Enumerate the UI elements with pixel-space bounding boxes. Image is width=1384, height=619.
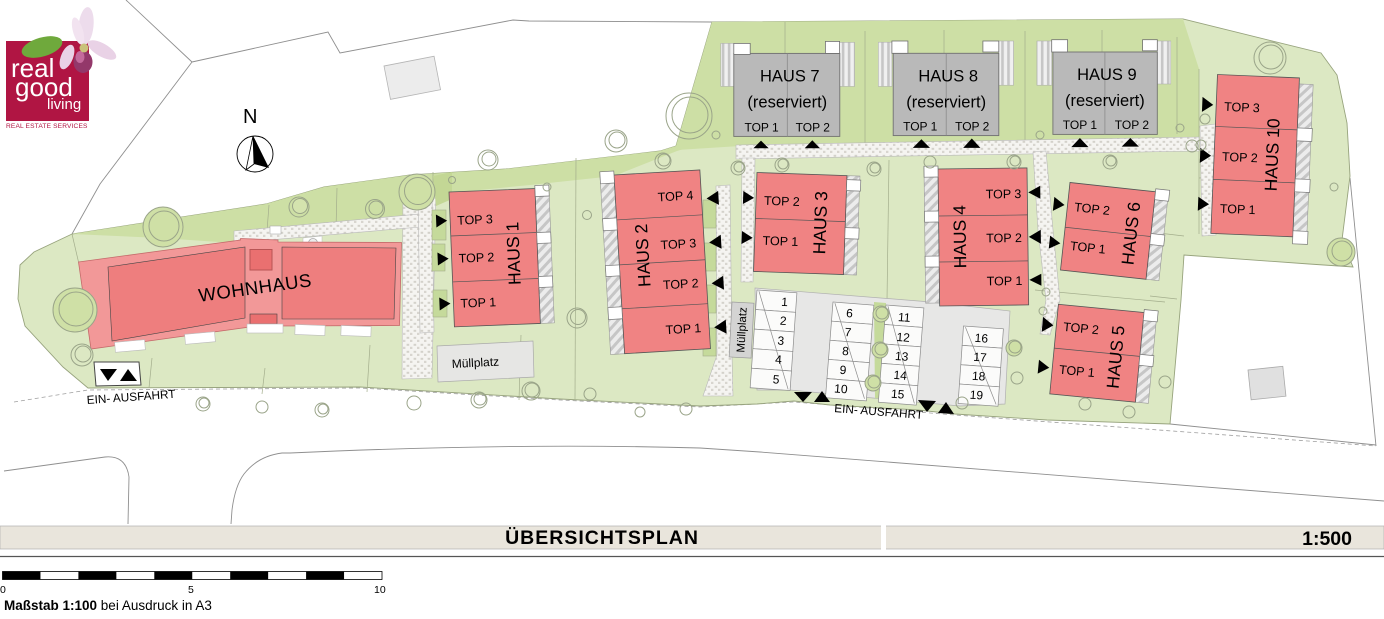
svg-text:TOP 1: TOP 1 bbox=[460, 295, 496, 310]
svg-text:HAUS 8: HAUS 8 bbox=[918, 67, 978, 85]
svg-text:TOP 2: TOP 2 bbox=[1222, 150, 1258, 165]
svg-text:REAL ESTATE SERVICES: REAL ESTATE SERVICES bbox=[6, 123, 88, 130]
svg-text:10: 10 bbox=[834, 381, 849, 396]
svg-text:15: 15 bbox=[891, 387, 906, 402]
svg-text:1:500: 1:500 bbox=[1302, 528, 1352, 550]
svg-text:TOP 2: TOP 2 bbox=[663, 276, 699, 292]
svg-text:TOP 3: TOP 3 bbox=[457, 212, 493, 227]
svg-text:19: 19 bbox=[969, 388, 984, 403]
svg-text:Maßstab 1:100 bei Ausdruck in: Maßstab 1:100 bei Ausdruck in A3 bbox=[4, 598, 212, 613]
svg-text:1: 1 bbox=[781, 295, 789, 309]
svg-text:HAUS 7: HAUS 7 bbox=[760, 67, 820, 85]
svg-text:5: 5 bbox=[772, 372, 780, 386]
svg-text:TOP 2: TOP 2 bbox=[986, 231, 1022, 245]
svg-text:TOP 2: TOP 2 bbox=[796, 120, 831, 134]
svg-text:TOP 1: TOP 1 bbox=[762, 234, 798, 249]
svg-text:TOP 1: TOP 1 bbox=[987, 274, 1023, 288]
svg-text:14: 14 bbox=[893, 368, 908, 383]
svg-text:HAUS 3: HAUS 3 bbox=[809, 191, 831, 255]
svg-text:N: N bbox=[243, 106, 257, 128]
svg-text:HAUS 10: HAUS 10 bbox=[1261, 118, 1284, 192]
svg-text:TOP 1: TOP 1 bbox=[1220, 202, 1256, 217]
svg-text:(reserviert): (reserviert) bbox=[906, 93, 986, 111]
svg-text:HAUS 1: HAUS 1 bbox=[502, 221, 525, 285]
svg-text:living: living bbox=[47, 96, 81, 113]
svg-text:TOP 1: TOP 1 bbox=[903, 119, 938, 133]
svg-text:3: 3 bbox=[777, 334, 785, 348]
svg-text:0: 0 bbox=[0, 584, 6, 596]
svg-text:TOP 1: TOP 1 bbox=[744, 120, 779, 134]
svg-text:TOP 3: TOP 3 bbox=[660, 236, 696, 252]
svg-text:TOP 1: TOP 1 bbox=[1063, 118, 1098, 132]
svg-text:2: 2 bbox=[779, 314, 787, 328]
svg-text:10: 10 bbox=[374, 584, 386, 596]
svg-text:17: 17 bbox=[973, 350, 988, 365]
svg-text:Müllplatz: Müllplatz bbox=[451, 355, 499, 371]
svg-text:TOP 2: TOP 2 bbox=[764, 194, 800, 209]
svg-text:TOP 2: TOP 2 bbox=[458, 250, 494, 265]
svg-text:TOP 3: TOP 3 bbox=[986, 187, 1022, 201]
svg-text:5: 5 bbox=[188, 584, 194, 596]
svg-text:18: 18 bbox=[972, 369, 987, 384]
svg-text:HAUS 4: HAUS 4 bbox=[949, 205, 970, 269]
svg-text:HAUS 2: HAUS 2 bbox=[631, 223, 655, 287]
svg-text:(reserviert): (reserviert) bbox=[1065, 92, 1145, 110]
svg-text:13: 13 bbox=[894, 349, 909, 364]
svg-text:12: 12 bbox=[896, 330, 911, 345]
svg-text:HAUS 9: HAUS 9 bbox=[1077, 66, 1137, 84]
svg-text:11: 11 bbox=[898, 310, 912, 325]
svg-text:(reserviert): (reserviert) bbox=[747, 93, 827, 111]
svg-text:Müllplatz: Müllplatz bbox=[735, 307, 749, 353]
svg-text:4: 4 bbox=[775, 352, 783, 366]
svg-text:TOP 3: TOP 3 bbox=[1224, 100, 1260, 115]
svg-text:TOP 4: TOP 4 bbox=[657, 188, 693, 204]
svg-text:TOP 2: TOP 2 bbox=[955, 119, 990, 133]
svg-text:ÜBERSICHTSPLAN: ÜBERSICHTSPLAN bbox=[505, 526, 699, 549]
svg-text:16: 16 bbox=[974, 331, 989, 346]
svg-text:TOP 2: TOP 2 bbox=[1115, 118, 1150, 132]
svg-text:TOP 1: TOP 1 bbox=[665, 321, 701, 337]
